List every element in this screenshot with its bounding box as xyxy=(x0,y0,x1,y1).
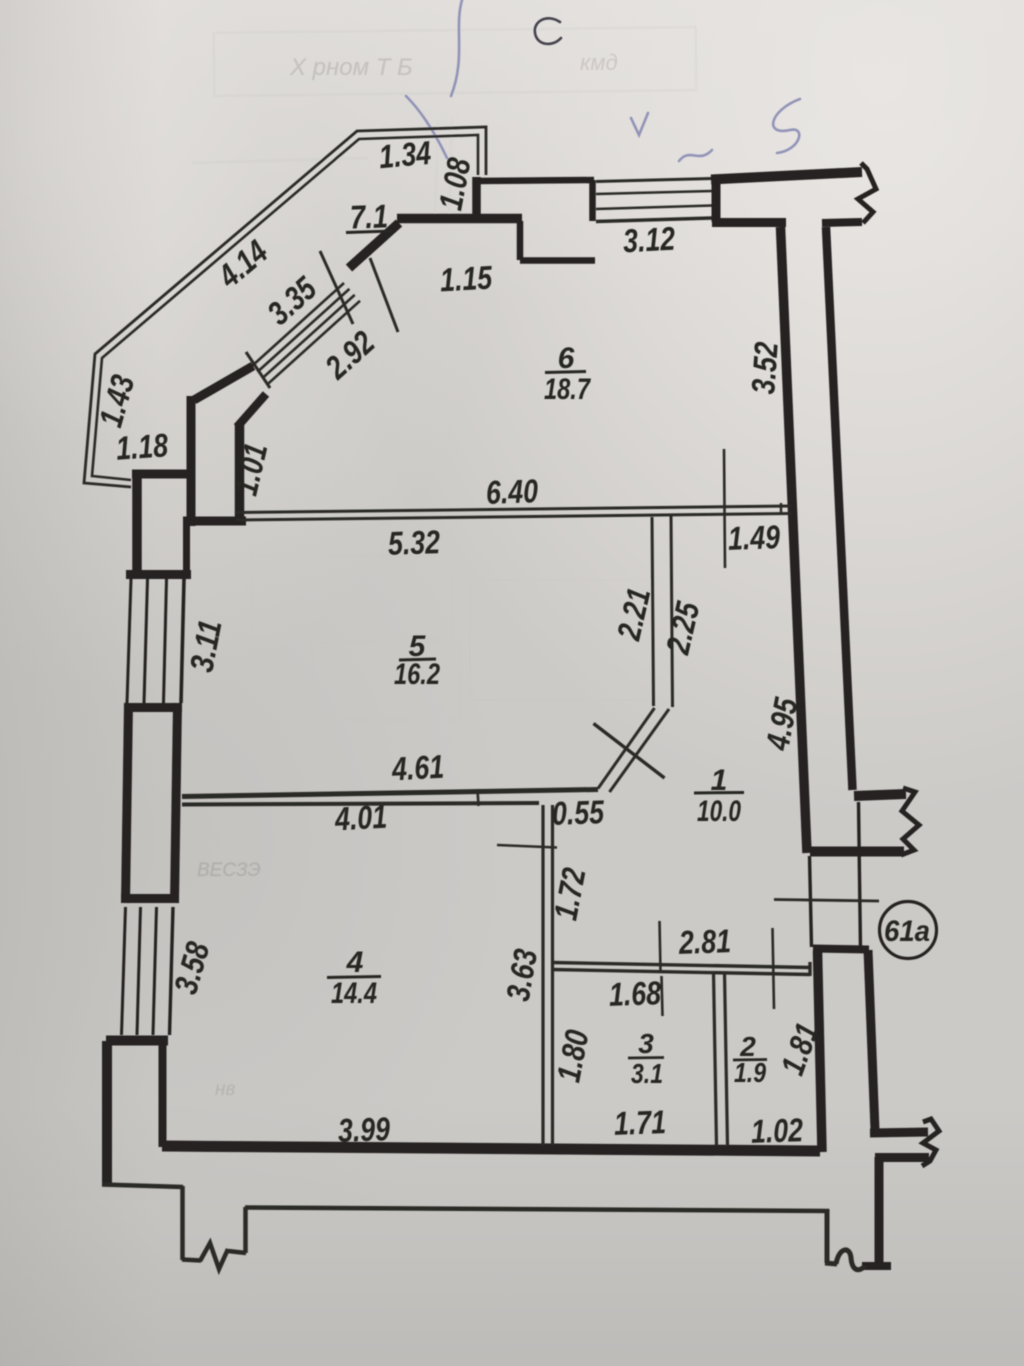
svg-text:6: 6 xyxy=(558,342,575,375)
svg-text:1.18: 1.18 xyxy=(115,426,170,467)
svg-text:14.4: 14.4 xyxy=(331,977,377,1010)
svg-text:6.40: 6.40 xyxy=(485,472,539,511)
svg-text:кмд: кмд xyxy=(580,50,618,75)
svg-text:18.7: 18.7 xyxy=(544,373,591,406)
svg-text:1.15: 1.15 xyxy=(439,259,493,299)
svg-text:3.99: 3.99 xyxy=(337,1110,391,1149)
svg-text:10.0: 10.0 xyxy=(697,795,741,828)
svg-text:1.34: 1.34 xyxy=(377,134,432,175)
svg-text:16.2: 16.2 xyxy=(394,658,440,691)
svg-text:1.68: 1.68 xyxy=(608,974,662,1013)
svg-text:1.9: 1.9 xyxy=(734,1057,766,1088)
svg-text:3: 3 xyxy=(638,1028,654,1059)
svg-text:5.32: 5.32 xyxy=(387,523,441,562)
svg-text:3.52: 3.52 xyxy=(744,340,785,395)
svg-text:3.1: 3.1 xyxy=(631,1058,663,1089)
svg-text:61а: 61а xyxy=(884,915,930,948)
svg-text:4: 4 xyxy=(346,946,364,979)
svg-text:3.12: 3.12 xyxy=(622,220,676,260)
svg-text:Х рном Т Б: Х рном Т Б xyxy=(289,54,413,81)
svg-text:ВЕСЗЭ: ВЕСЗЭ xyxy=(197,860,261,881)
svg-text:1.49: 1.49 xyxy=(727,518,781,557)
svg-text:1.02: 1.02 xyxy=(750,1111,804,1150)
svg-text:4.01: 4.01 xyxy=(333,798,388,838)
svg-text:нв: нв xyxy=(215,1079,235,1100)
svg-text:0.55: 0.55 xyxy=(551,793,605,832)
svg-text:4.61: 4.61 xyxy=(390,748,445,788)
svg-text:2.81: 2.81 xyxy=(678,922,732,961)
svg-text:1.71: 1.71 xyxy=(613,1103,666,1142)
